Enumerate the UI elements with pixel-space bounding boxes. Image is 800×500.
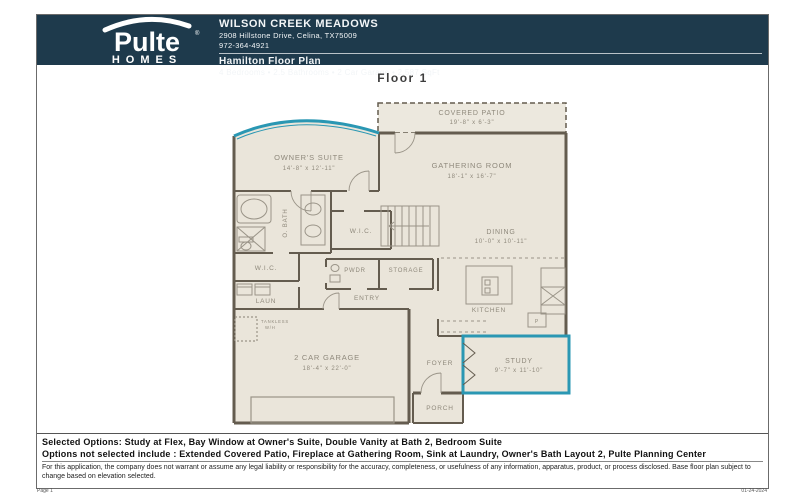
room-dims-covered-patio: 19'-8" x 6'-3" <box>450 120 495 126</box>
room-label-owners-bath: O. BATH <box>283 208 289 237</box>
room-dims-owners-suite: 14'-8" x 12'-11" <box>283 166 336 172</box>
room-dims-study: 9'-7" x 11'-10" <box>495 368 543 374</box>
header-text-block: WILSON CREEK MEADOWS 2908 Hillstone Driv… <box>219 18 762 77</box>
floor-label: Floor 1 <box>37 71 768 85</box>
room-label-study: STUDY <box>505 358 533 365</box>
room-label-pwdr: PWDR <box>344 268 366 274</box>
print-date: 01-24-2024 <box>741 488 767 494</box>
room-label-gathering-room: GATHERING ROOM <box>432 161 513 170</box>
header: Pulte ® HOMES WILSON CREEK MEADOWS 2908 … <box>37 15 768 65</box>
options-not-selected-text: Options not selected include : Extended … <box>42 449 747 459</box>
room-label-foyer: FOYER <box>427 360 453 367</box>
logo-sub: HOMES <box>112 54 182 66</box>
room-label-pantry: P <box>535 319 539 325</box>
community-address: 2908 Hillstone Drive, Celina, TX75009 <box>219 31 762 40</box>
plan-name: Hamilton Floor Plan <box>219 56 762 67</box>
room-label-garage: 2 CAR GARAGE <box>294 353 360 362</box>
footer: Selected Options: Study at Flex, Bay Win… <box>37 433 768 488</box>
room-label-kitchen: KITCHEN <box>472 307 506 314</box>
logo-brand: Pulte <box>114 27 180 57</box>
pulte-homes-logo: Pulte ® HOMES <box>67 13 227 67</box>
room-label-owners-suite: OWNER'S SUITE <box>274 153 344 162</box>
label-tankless-line1: TANKLESS <box>261 319 289 324</box>
room-label-laundry: LAUN <box>256 298 277 305</box>
page-number: Page 1 <box>37 488 53 494</box>
room-label-entry: ENTRY <box>354 295 380 302</box>
community-name: WILSON CREEK MEADOWS <box>219 18 762 30</box>
plan-room-fills <box>234 103 569 423</box>
floor-plan: COVERED PATIO 19'-8" x 6'-3" OWNER'S SUI… <box>229 91 573 431</box>
room-label-dining: DINING <box>486 229 515 236</box>
room-dims-gathering-room: 18'-1" x 16'-7" <box>448 174 497 180</box>
document-frame: Pulte ® HOMES WILSON CREEK MEADOWS 2908 … <box>36 14 769 489</box>
disclaimer-text: For this application, the company does n… <box>42 461 763 481</box>
label-tankless-line2: W/H <box>265 325 276 330</box>
logo-registered-mark: ® <box>195 30 200 37</box>
community-phone: 972-364-4921 <box>219 41 762 50</box>
room-label-wic-2: W.I.C. <box>255 265 278 272</box>
room-dims-dining: 10'-0" x 10'-11" <box>475 239 528 245</box>
room-label-wic-1: W.I.C. <box>350 228 373 235</box>
room-dims-garage: 18'-4" x 22'-0" <box>303 366 352 372</box>
room-label-covered-patio: COVERED PATIO <box>439 110 506 117</box>
room-label-storage: STORAGE <box>389 268 424 274</box>
header-divider <box>219 53 762 54</box>
covered-patio-outline <box>378 103 566 133</box>
selected-options-text: Selected Options: Study at Flex, Bay Win… <box>42 437 763 447</box>
room-label-porch: PORCH <box>426 405 453 412</box>
